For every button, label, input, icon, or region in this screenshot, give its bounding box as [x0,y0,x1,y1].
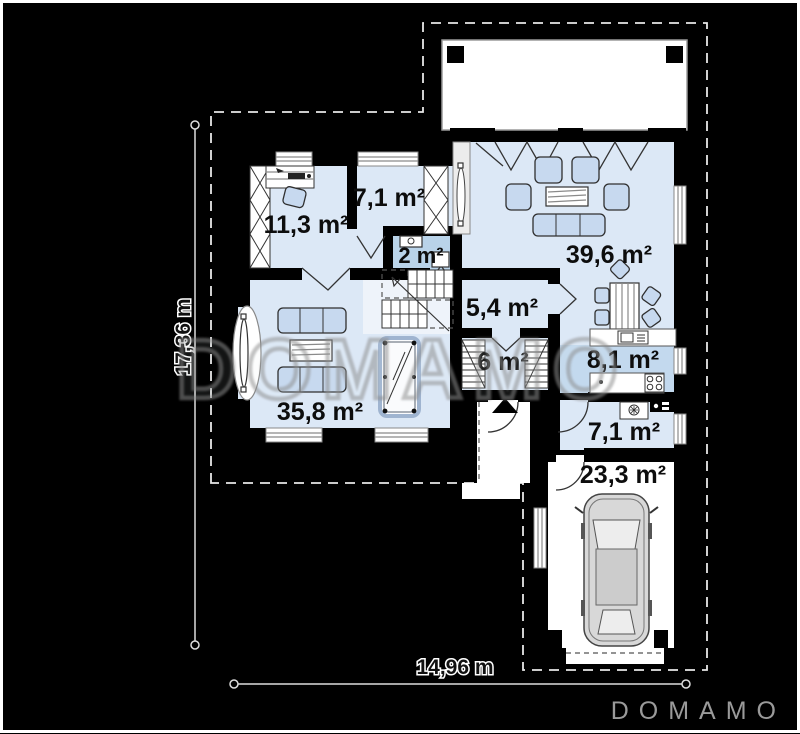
armchair [572,157,599,183]
floor-plan-page: 17,36 m 14,96 m 11,3 m² 7,1 m² 2 m² 39,6… [0,0,800,734]
cooktop [645,374,664,392]
car [575,494,658,646]
terrace [442,40,687,130]
room-label-office: 11,3 m² [264,211,349,239]
window-office-top [276,152,312,166]
window-living-right [674,186,686,244]
armchair [506,184,531,210]
room-label-utility: 7,1 m² [588,418,660,446]
window-room-top [358,152,418,166]
room-label-hall: 5,4 m² [466,294,538,322]
armchair [535,157,562,183]
window-garage-left [534,508,546,568]
watermark-text: DOMAMO [176,322,628,416]
room-label-room-top: 7,1 m² [353,184,425,212]
armchair [604,184,629,210]
watermark: DOMAMO [176,322,628,416]
brand-logo: DOMAMO [611,697,786,725]
room-label-living-dining: 39,6 m² [566,241,652,269]
width-dimension-label: 14,96 m [416,656,493,679]
window-living-bottom-1 [266,428,322,442]
room-label-garage: 23,3 m² [580,461,666,489]
coffee-table [546,187,588,206]
desk [266,166,314,188]
sofa-3seat [533,214,605,236]
dining-chair [595,288,609,303]
utility-counter [650,400,674,412]
room-label-wc: 2 m² [398,243,443,268]
window-utility-right [674,414,686,444]
floor-plan-drawing: 17,36 m 14,96 m 11,3 m² 7,1 m² 2 m² 39,6… [0,0,800,734]
wardrobe-room-top [424,166,448,234]
garage-door [566,648,664,664]
window-kitchen-right [674,348,686,374]
window-living-bottom-2 [375,428,428,442]
